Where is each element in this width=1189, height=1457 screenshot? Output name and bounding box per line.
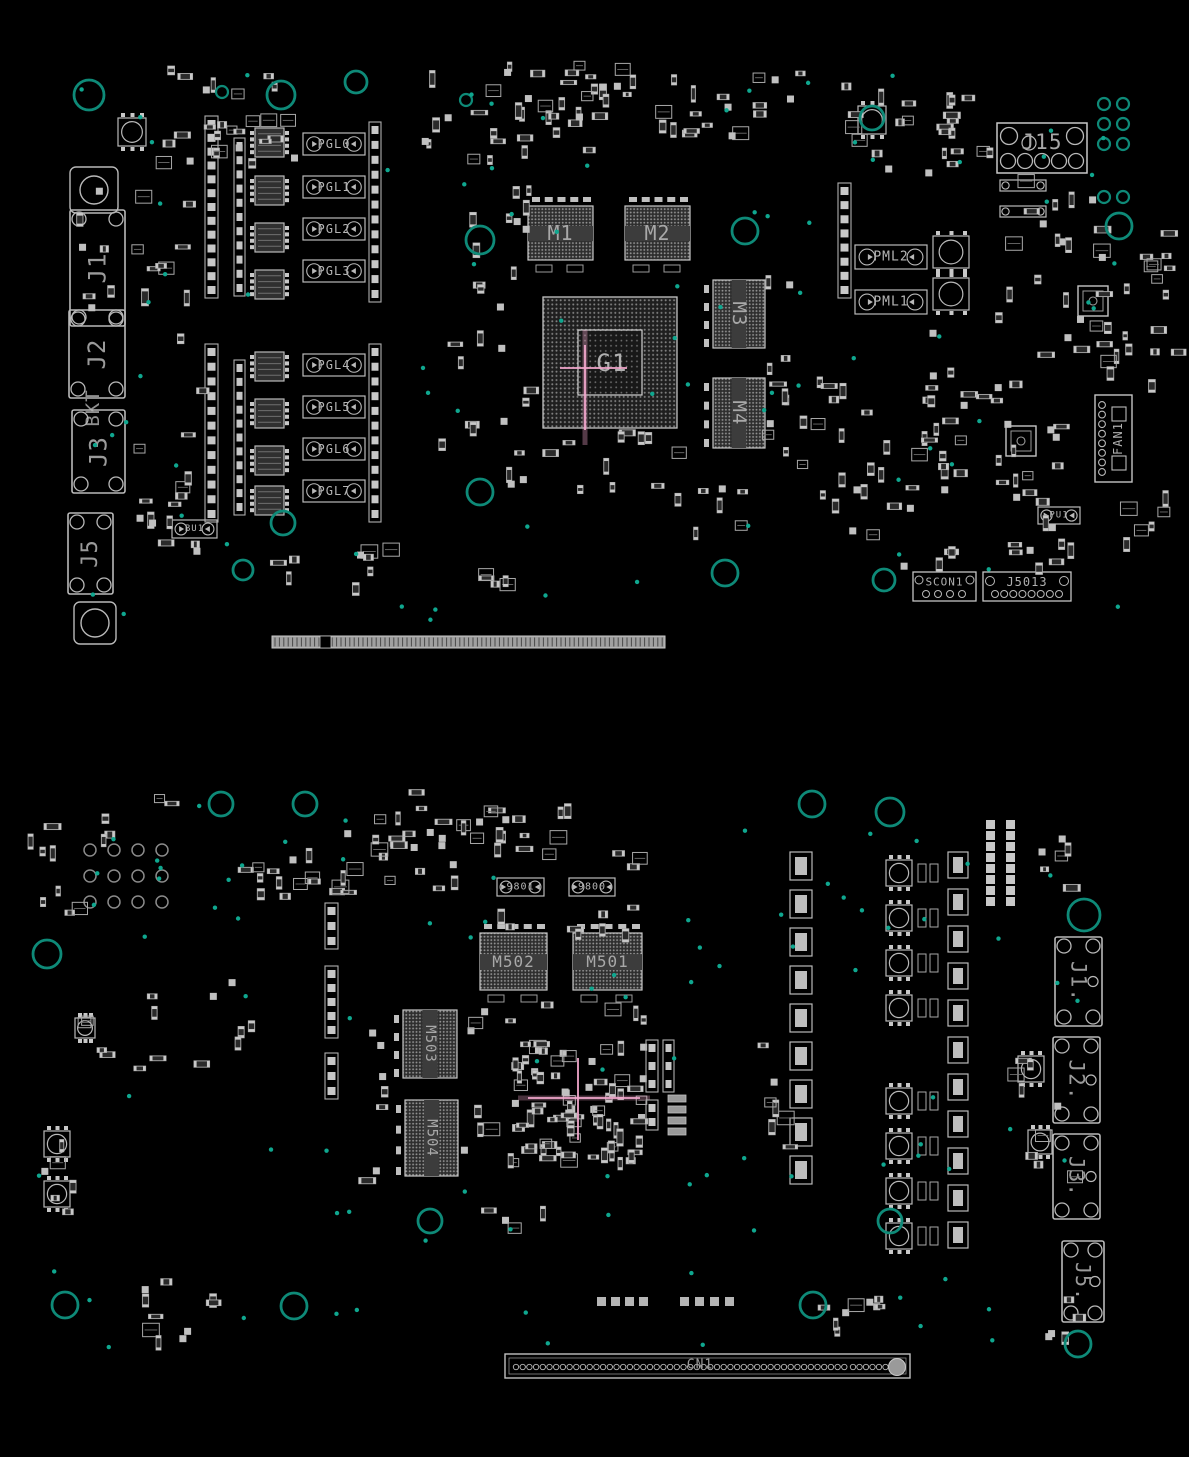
- soic-part: [250, 270, 289, 299]
- component-label: M503: [422, 1025, 438, 1063]
- component-label: M502: [492, 952, 535, 971]
- component-m501[interactable]: M501: [573, 924, 642, 1002]
- soic-part: [250, 223, 289, 252]
- component-label: CN1: [687, 1358, 713, 1373]
- component-label: M4: [728, 401, 750, 426]
- edge-connector[interactable]: [272, 636, 665, 648]
- component-label: J5.: [1071, 1262, 1095, 1301]
- soic-part: [250, 352, 289, 381]
- component-label: PML1: [873, 295, 908, 310]
- component-m4[interactable]: M4: [704, 378, 765, 448]
- component-label: PU1: [1049, 511, 1068, 521]
- component-label: M504: [424, 1119, 440, 1157]
- component-label: PGL6: [318, 442, 351, 456]
- pcb-boardview-svg[interactable]: J1J2BKTJ3J5PGL0PGL1PGL2PGL3PGL4PGL5PGL6P…: [0, 0, 1189, 1457]
- boardview-canvas[interactable]: J1J2BKTJ3J5PGL0PGL1PGL2PGL3PGL4PGL5PGL6P…: [0, 0, 1189, 1457]
- component-label: BKT: [82, 389, 104, 426]
- component-m3[interactable]: M3: [704, 280, 765, 348]
- component-label: PGL2: [318, 222, 351, 236]
- component-bkt[interactable]: BKT: [82, 389, 104, 426]
- component-label: J15: [1022, 130, 1063, 154]
- component-label: M1: [547, 221, 573, 245]
- component-label: M3: [728, 302, 750, 327]
- soic-part: [250, 399, 289, 428]
- component-label: PGL7: [318, 484, 351, 498]
- component-label: J1.: [1067, 961, 1091, 1002]
- component-label: M2: [644, 221, 670, 245]
- component-m504[interactable]: M504: [396, 1100, 458, 1176]
- component-label: PGL3: [318, 264, 351, 278]
- component-m503[interactable]: M503: [394, 1010, 457, 1078]
- component-label: M501: [586, 952, 629, 971]
- component-label: J2: [83, 339, 111, 370]
- component-label: J1: [84, 253, 112, 284]
- component-label: J3: [85, 436, 113, 467]
- component-label: PGL5: [318, 400, 351, 414]
- soic-part: [250, 446, 289, 475]
- component-label: 9800: [578, 882, 606, 893]
- component-label: PGL1: [318, 180, 351, 194]
- component-label: FAN1: [1111, 422, 1125, 455]
- component-m502[interactable]: M502: [480, 924, 547, 1002]
- component-g1[interactable]: G1: [543, 297, 677, 428]
- soic-part: [250, 176, 289, 205]
- component-label: SCON1: [925, 576, 963, 589]
- component-label: J5013: [1006, 575, 1047, 589]
- component-label: G1: [597, 349, 628, 377]
- component-label: J5: [78, 539, 103, 568]
- component-label: 9801: [506, 882, 534, 893]
- component-label: PGL4: [318, 358, 351, 372]
- component-label: PML2: [873, 250, 908, 265]
- component-label: BU1: [185, 524, 204, 534]
- component-label: PGL0: [318, 137, 351, 151]
- component-label: J2.: [1065, 1060, 1089, 1101]
